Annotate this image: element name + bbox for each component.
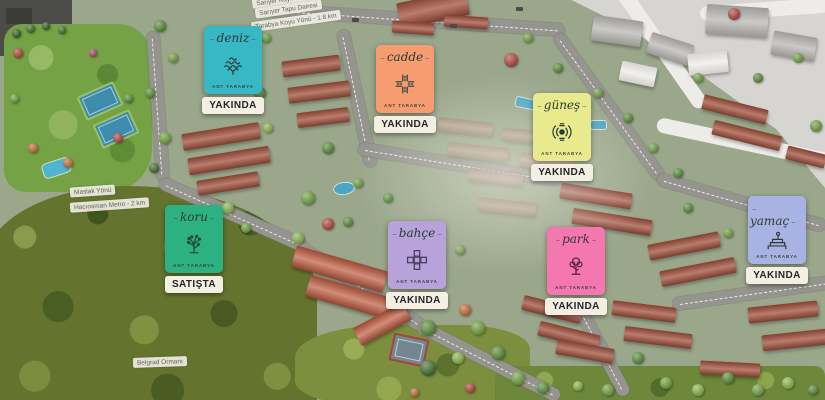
brand-label: ANT TARABYA: [396, 279, 438, 284]
tree: [10, 94, 19, 103]
sea-waves-icon: [222, 54, 244, 76]
building: [392, 21, 435, 36]
tree: [145, 88, 155, 98]
tree: [452, 352, 464, 364]
tree: [26, 24, 35, 33]
street-crossing-icon: [394, 73, 416, 95]
car: [352, 18, 359, 22]
building: [647, 231, 721, 260]
tree: [465, 383, 475, 393]
tree: [573, 381, 583, 391]
building: [611, 300, 676, 323]
sun-icon: [551, 121, 573, 143]
brand-label: ANT TARABYA: [555, 285, 597, 290]
tree: [722, 372, 734, 384]
phase-name: cadde: [378, 51, 431, 64]
tree: [42, 22, 50, 30]
phase-name: güneş: [535, 99, 588, 112]
brand-label: ANT TARABYA: [212, 84, 254, 89]
tree: [504, 53, 518, 67]
tree: [12, 29, 21, 38]
phase-marker-gunes[interactable]: güneş ANT TARABYA YAKINDA: [525, 93, 599, 181]
tree: [58, 26, 66, 34]
building: [287, 80, 350, 103]
tree: [523, 33, 533, 43]
phase-card-bahce[interactable]: bahçe ANT TARABYA: [388, 221, 446, 289]
tree: [343, 217, 353, 227]
phase-name: deniz: [208, 32, 258, 45]
status-badge[interactable]: YAKINDA: [531, 164, 592, 181]
tree: [632, 352, 644, 364]
car: [516, 7, 523, 11]
status-badge[interactable]: YAKINDA: [202, 97, 263, 114]
tree: [292, 232, 304, 244]
phase-card-gunes[interactable]: güneş ANT TARABYA: [533, 93, 591, 161]
tree: [113, 133, 123, 143]
tree: [410, 388, 419, 397]
tree: [692, 384, 704, 396]
phase-marker-deniz[interactable]: deniz ANT TARABYA YAKINDA: [196, 26, 270, 114]
tree: [723, 228, 733, 238]
building: [196, 171, 260, 196]
building: [281, 55, 341, 78]
tree: [159, 132, 171, 144]
car: [450, 24, 457, 28]
tree: [810, 120, 822, 132]
phase-marker-koru[interactable]: koru ANT TARABYA SATIŞTA: [157, 205, 231, 293]
park-tree-icon: [565, 255, 587, 277]
building: [659, 257, 737, 287]
status-badge[interactable]: YAKINDA: [374, 116, 435, 133]
tree: [168, 53, 178, 63]
tree: [420, 360, 436, 376]
tree: [808, 385, 818, 395]
phase-marker-yamac[interactable]: yamaç ANT TARABYA YAKINDA: [740, 196, 814, 284]
phase-name: koru: [172, 211, 217, 224]
phase-card-yamac[interactable]: yamaç ANT TARABYA: [748, 196, 806, 264]
status-badge[interactable]: YAKINDA: [386, 292, 447, 309]
brand-label: ANT TARABYA: [173, 263, 215, 268]
tree: [683, 203, 693, 213]
building: [747, 300, 818, 323]
grove-tree-icon: [183, 233, 205, 255]
hillside-icon: [766, 230, 788, 252]
tree: [63, 158, 73, 168]
phase-card-deniz[interactable]: deniz ANT TARABYA: [204, 26, 262, 94]
status-badge[interactable]: YAKINDA: [545, 298, 606, 315]
tree: [782, 377, 794, 389]
building: [687, 50, 729, 76]
tree: [154, 20, 166, 32]
building: [590, 15, 643, 48]
tree: [728, 8, 740, 20]
phase-card-park[interactable]: park ANT TARABYA: [547, 227, 605, 295]
tree: [263, 123, 273, 133]
building: [761, 329, 825, 352]
tree: [301, 191, 315, 205]
phase-card-cadde[interactable]: cadde ANT TARABYA: [376, 45, 434, 113]
tree: [124, 94, 133, 103]
tree: [13, 48, 23, 58]
tree: [660, 377, 672, 389]
building: [296, 107, 349, 128]
tree: [459, 304, 471, 316]
brand-label: ANT TARABYA: [541, 151, 583, 156]
status-badge[interactable]: SATIŞTA: [165, 276, 223, 293]
status-badge[interactable]: YAKINDA: [746, 267, 807, 284]
tree: [28, 143, 38, 153]
tree: [491, 346, 505, 360]
tree: [322, 218, 334, 230]
tree: [149, 163, 159, 173]
tree: [553, 63, 563, 73]
phase-marker-cadde[interactable]: cadde ANT TARABYA YAKINDA: [368, 45, 442, 133]
tree: [511, 371, 525, 385]
building: [187, 146, 271, 176]
garden-plots-icon: [406, 249, 428, 271]
map-label-orman: Belgrad Ormanı: [133, 356, 187, 368]
building: [181, 122, 261, 151]
park-area: [4, 24, 152, 192]
phase-card-koru[interactable]: koru ANT TARABYA: [165, 205, 223, 273]
tree: [537, 382, 549, 394]
phase-name: yamaç: [750, 202, 804, 228]
tree: [322, 142, 334, 154]
tree: [420, 320, 436, 336]
tree: [602, 384, 614, 396]
tree: [793, 53, 803, 63]
tree: [693, 73, 703, 83]
masterplan-map: Sarıyer Kaymakamlığı Sarıyer Tapu Daires…: [0, 0, 825, 400]
tree: [471, 321, 485, 335]
phase-name: bahçe: [390, 227, 443, 240]
tree: [89, 49, 97, 57]
tree: [241, 223, 251, 233]
tree: [673, 168, 683, 178]
phase-name: park: [554, 233, 599, 246]
phase-marker-park[interactable]: park ANT TARABYA YAKINDA: [539, 227, 613, 315]
building: [623, 326, 692, 349]
brand-label: ANT TARABYA: [384, 103, 426, 108]
tree: [752, 384, 764, 396]
tree: [753, 73, 763, 83]
phase-marker-bahce[interactable]: bahçe ANT TARABYA YAKINDA: [380, 221, 454, 309]
brand-label: ANT TARABYA: [756, 254, 798, 259]
